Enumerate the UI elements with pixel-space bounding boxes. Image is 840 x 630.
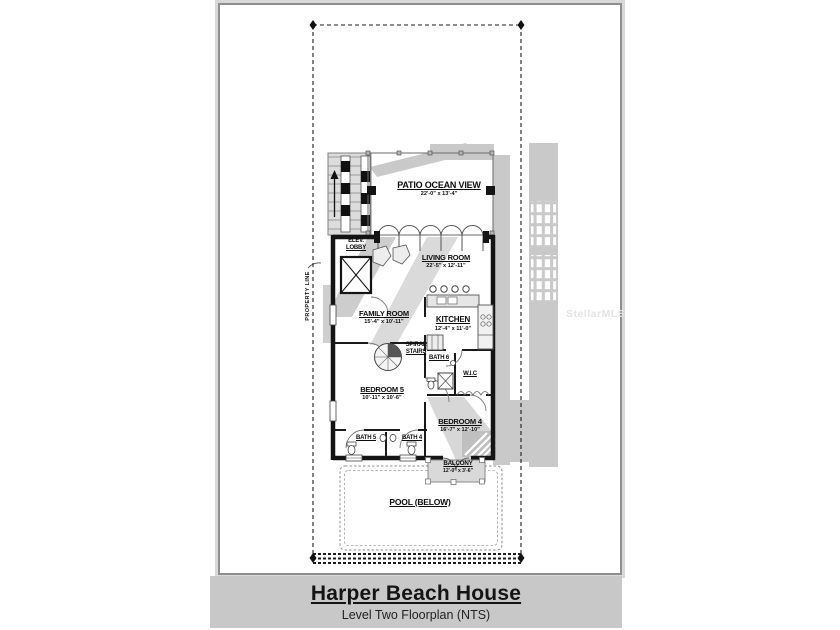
room-name: BEDROOM 4 <box>438 418 482 426</box>
boundary-marker-icon <box>310 20 317 30</box>
room-label-bath4: BATH 4 <box>402 435 422 442</box>
room-name-line2: STAIRS <box>406 349 427 356</box>
room-name: KITCHEN <box>435 316 471 325</box>
floorplan-page: PATIO OCEAN VIEW 22'-0" x 13'-4" LIVING … <box>0 0 840 630</box>
room-name: POOL (BELOW) <box>389 498 450 508</box>
room-label-bedroom4: BEDROOM 4 16'-7" x 12'-10" <box>438 418 482 434</box>
room-name: BATH 5 <box>356 435 376 442</box>
room-dims: 22'-0" x 13'-4" <box>397 191 480 197</box>
room-dims: 12'-0" x 3'-6" <box>443 469 473 475</box>
room-name-line2: LOBBY <box>346 245 366 252</box>
room-label-bedroom5: BEDROOM 5 10'-11" x 10'-6" <box>360 386 404 402</box>
room-label-balcony: BALCONY 12'-0" x 3'-6" <box>443 461 473 475</box>
room-name: BATH 6 <box>429 355 449 362</box>
title-block: Harper Beach House Level Two Floorplan (… <box>210 576 622 628</box>
room-name: PATIO OCEAN VIEW <box>397 180 480 190</box>
room-label-living: LIVING ROOM 22'-5" x 12'-11" <box>422 254 470 270</box>
watermark: StellarMLS <box>566 308 625 320</box>
room-label-spiral-stairs: SPIRAL STAIRS <box>406 342 427 355</box>
window-grid-lower <box>531 255 556 303</box>
spiral-staircase <box>375 344 402 371</box>
room-label-patio: PATIO OCEAN VIEW 22'-0" x 13'-4" <box>397 180 480 197</box>
room-name: W.I.C <box>463 371 477 378</box>
room-name: FAMILY ROOM <box>359 310 409 318</box>
room-dims: 22'-5" x 12'-11" <box>422 263 470 269</box>
room-label-pool: POOL (BELOW) <box>389 498 450 508</box>
column-left <box>367 186 376 195</box>
window-grid-upper <box>531 201 556 247</box>
room-name-line1: ELEV. <box>346 238 366 245</box>
room-name: BATH 4 <box>402 435 422 442</box>
lobby-closets <box>373 245 410 266</box>
elevator-shaft <box>341 257 371 293</box>
room-name: LIVING ROOM <box>422 254 470 262</box>
column-right <box>486 186 495 195</box>
room-label-bath5: BATH 5 <box>356 435 376 442</box>
exterior-stairs <box>328 153 371 235</box>
room-dims: 16'-7" x 12'-10" <box>438 427 482 433</box>
room-label-wic: W.I.C <box>463 371 477 378</box>
floorplan-drawing <box>220 5 620 573</box>
property-line-label: PROPERTY LINE <box>305 265 311 327</box>
room-label-kitchen: KITCHEN 12'-4" x 11'-0" <box>435 316 471 332</box>
room-dims: 12'-4" x 11'-0" <box>435 326 471 332</box>
room-name: BEDROOM 5 <box>360 386 404 394</box>
room-label-bath6: BATH 6 <box>429 355 449 362</box>
plan-title: Harper Beach House <box>210 582 622 606</box>
plan-sheet: PATIO OCEAN VIEW 22'-0" x 13'-4" LIVING … <box>218 3 622 575</box>
room-label-family: FAMILY ROOM 15'-4" x 10'-11" <box>359 310 409 326</box>
room-name: BALCONY <box>443 461 473 468</box>
room-label-elev-lobby: ELEV. LOBBY <box>346 238 366 251</box>
room-dims: 15'-4" x 10'-11" <box>359 319 409 325</box>
plan-subtitle: Level Two Floorplan (NTS) <box>210 608 622 622</box>
room-name-line1: SPIRAL <box>406 342 427 349</box>
room-dims: 10'-11" x 10'-6" <box>360 395 404 401</box>
boundary-marker-icon <box>518 20 525 30</box>
